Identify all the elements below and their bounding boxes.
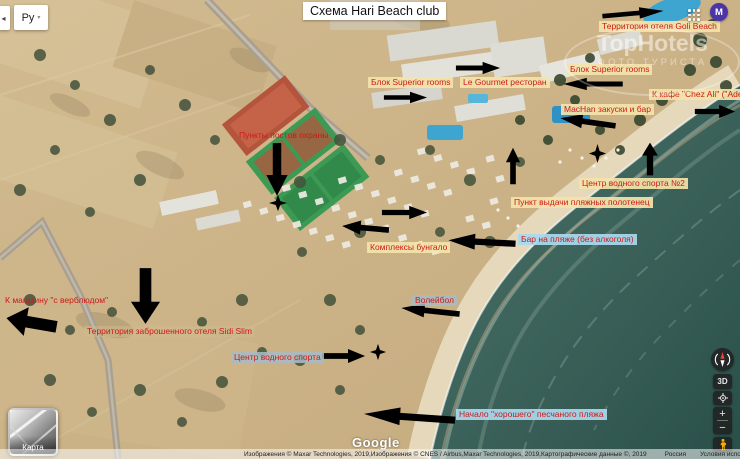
language-label: Ру	[22, 12, 35, 24]
apps-grid-icon[interactable]	[688, 9, 700, 21]
label-water-sport-1: Центр водного спорта	[231, 352, 324, 363]
label-sidi-slim: Территория заброшенного отеля Sidi Slim	[84, 326, 255, 337]
bungalow-arrow-right	[381, 205, 428, 220]
chevron-down-icon: ▾	[37, 14, 40, 21]
water-sport-2-arrow	[641, 142, 659, 176]
superior-rooms-1-arrow	[383, 91, 428, 104]
chez-ali-arrow	[694, 104, 736, 119]
map-viewport[interactable]: Территория отеля Goli Beach Блок Superio…	[0, 0, 740, 459]
label-le-gourmet: Le Gourmet ресторан	[460, 77, 550, 88]
terms-link[interactable]: Условия использования	[700, 451, 740, 458]
attribution-bar: Изображения © Maxar Technologies, 2019,И…	[0, 449, 740, 459]
label-towel-point: Пункт выдачи пляжных полотенец	[511, 197, 653, 208]
zoom-in-button[interactable]: +	[713, 407, 732, 420]
label-good-beach: Начало "хорошего" песчаного пляжа	[456, 409, 607, 420]
label-superior-rooms-2: Блок Superior rooms	[567, 64, 652, 75]
label-territory-goli-beach: Территория отеля Goli Beach	[599, 21, 720, 32]
guard-posts-arrow	[265, 142, 289, 197]
copyright-text: Изображения © Maxar Technologies, 2019,И…	[244, 451, 647, 458]
label-volleyball: Волейбол	[412, 295, 457, 306]
machan-star-marker	[588, 143, 607, 164]
avatar[interactable]: M	[710, 3, 728, 21]
label-bungalows: Комплексы бунгало	[367, 242, 450, 253]
label-guard-posts: Пункты постов охраны	[236, 130, 331, 141]
label-water-sport-2: Центр водного спорта №2	[579, 178, 688, 189]
3d-view-button[interactable]: 3D	[713, 374, 732, 389]
language-button[interactable]: Ру ▾	[14, 5, 48, 30]
collapse-panel-button[interactable]: ◂	[0, 6, 10, 30]
water-sport-1-arrow	[321, 348, 366, 364]
guard-posts-star-marker	[268, 194, 288, 212]
page-title: Схема Hari Beach club	[303, 2, 446, 20]
label-machan-bar: MacHan закуски и бар	[561, 104, 654, 115]
beach-bar-arrow	[447, 231, 518, 253]
my-location-icon	[717, 392, 729, 404]
water-sport-1-star-marker	[369, 343, 387, 361]
towel-point-arrow	[505, 147, 521, 185]
compass-button[interactable]	[711, 348, 734, 371]
my-location-button[interactable]	[713, 391, 732, 405]
label-superior-rooms-1: Блок Superior rooms	[368, 77, 453, 88]
superior-rooms-2-arrow	[562, 77, 624, 91]
zoom-controls: + −	[713, 407, 732, 434]
compass-icon	[713, 350, 732, 369]
collapse-icon: ◂	[1, 14, 5, 23]
label-chez-ali: К кафе "Chez Ali" ("Adel")	[649, 89, 740, 100]
sidi-slim-arrow	[129, 267, 162, 325]
label-camel-shop: К магазину "с верблюдом"	[2, 295, 111, 306]
le-gourmet-arrow	[455, 61, 501, 75]
label-beach-bar: Бар на пляже (без алкоголя)	[518, 234, 637, 245]
google-logo[interactable]: Google	[352, 435, 400, 450]
zoom-out-button[interactable]: −	[713, 421, 732, 434]
country-label: Россия	[665, 451, 686, 458]
